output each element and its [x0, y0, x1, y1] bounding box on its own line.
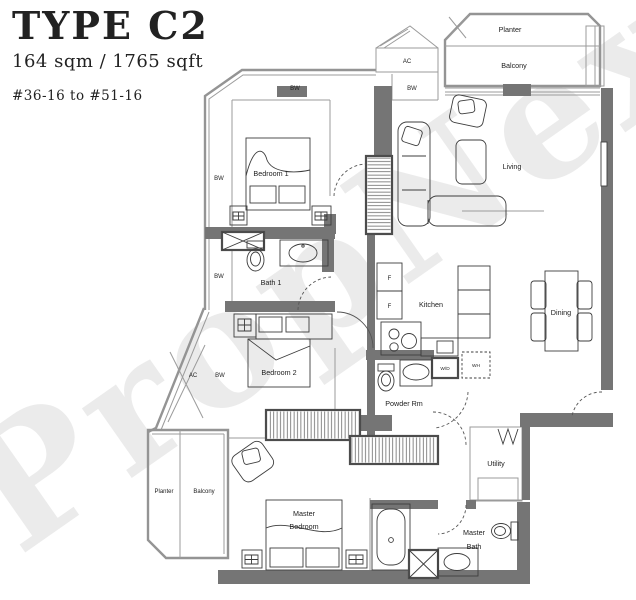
marker-fridge-1: F	[388, 276, 392, 282]
label-master-bath-line1: Master	[463, 528, 486, 537]
floor-plan-page: PropNex TYPE C2 164 sqm / 1765 sqft #36-…	[0, 0, 636, 600]
marker-bw-left-3: BW	[215, 373, 225, 379]
bedroom2-wardrobe	[266, 410, 360, 440]
room-labels: Planter Balcony Living Dining Kitchen Be…	[154, 25, 571, 551]
label-living: Living	[503, 162, 522, 171]
label-dining: Dining	[551, 308, 571, 317]
floor-plan-drawing: Planter Balcony Living Dining Kitchen Be…	[0, 0, 636, 600]
bath1-fixtures	[247, 240, 331, 310]
label-planter-left: Planter	[154, 489, 173, 495]
label-bedroom2: Bedroom 2	[261, 368, 296, 377]
label-bedroom1: Bedroom 1	[253, 169, 288, 178]
marker-bw-top-right: BW	[407, 86, 417, 92]
label-master-bedroom-line1: Master	[293, 509, 316, 518]
label-planter-top: Planter	[499, 25, 522, 34]
foyer-cabinet	[366, 156, 392, 234]
marker-fridge-2: F	[388, 304, 392, 310]
master-bedroom-furniture	[229, 439, 367, 570]
label-master-bath-line2: Bath	[467, 542, 482, 551]
label-utility: Utility	[487, 459, 505, 468]
marker-bw-left-2: BW	[214, 274, 224, 280]
label-kitchen: Kitchen	[419, 300, 443, 309]
marker-ac-top: AC	[403, 59, 412, 65]
marker-water-heater: WH	[472, 363, 481, 369]
marker-washer-dryer: W/D	[440, 366, 450, 372]
marker-bw-left-1: BW	[214, 176, 224, 182]
entry-door	[334, 164, 366, 196]
label-master-bedroom-line2: Bedroom	[289, 522, 318, 531]
marker-ac-left: AC	[189, 373, 198, 379]
living-furniture	[398, 94, 607, 226]
marker-bw-top-left: BW	[290, 86, 300, 92]
master-bath-fixtures	[372, 504, 518, 578]
kitchen-fixtures	[377, 263, 490, 378]
label-balcony-top: Balcony	[501, 61, 527, 70]
label-balcony-left: Balcony	[193, 489, 214, 495]
label-bath1: Bath 1	[261, 278, 282, 287]
master-bedroom-wardrobe	[350, 436, 438, 464]
bedroom2-furniture	[234, 312, 373, 387]
label-powder-room: Powder Rm	[385, 399, 423, 408]
